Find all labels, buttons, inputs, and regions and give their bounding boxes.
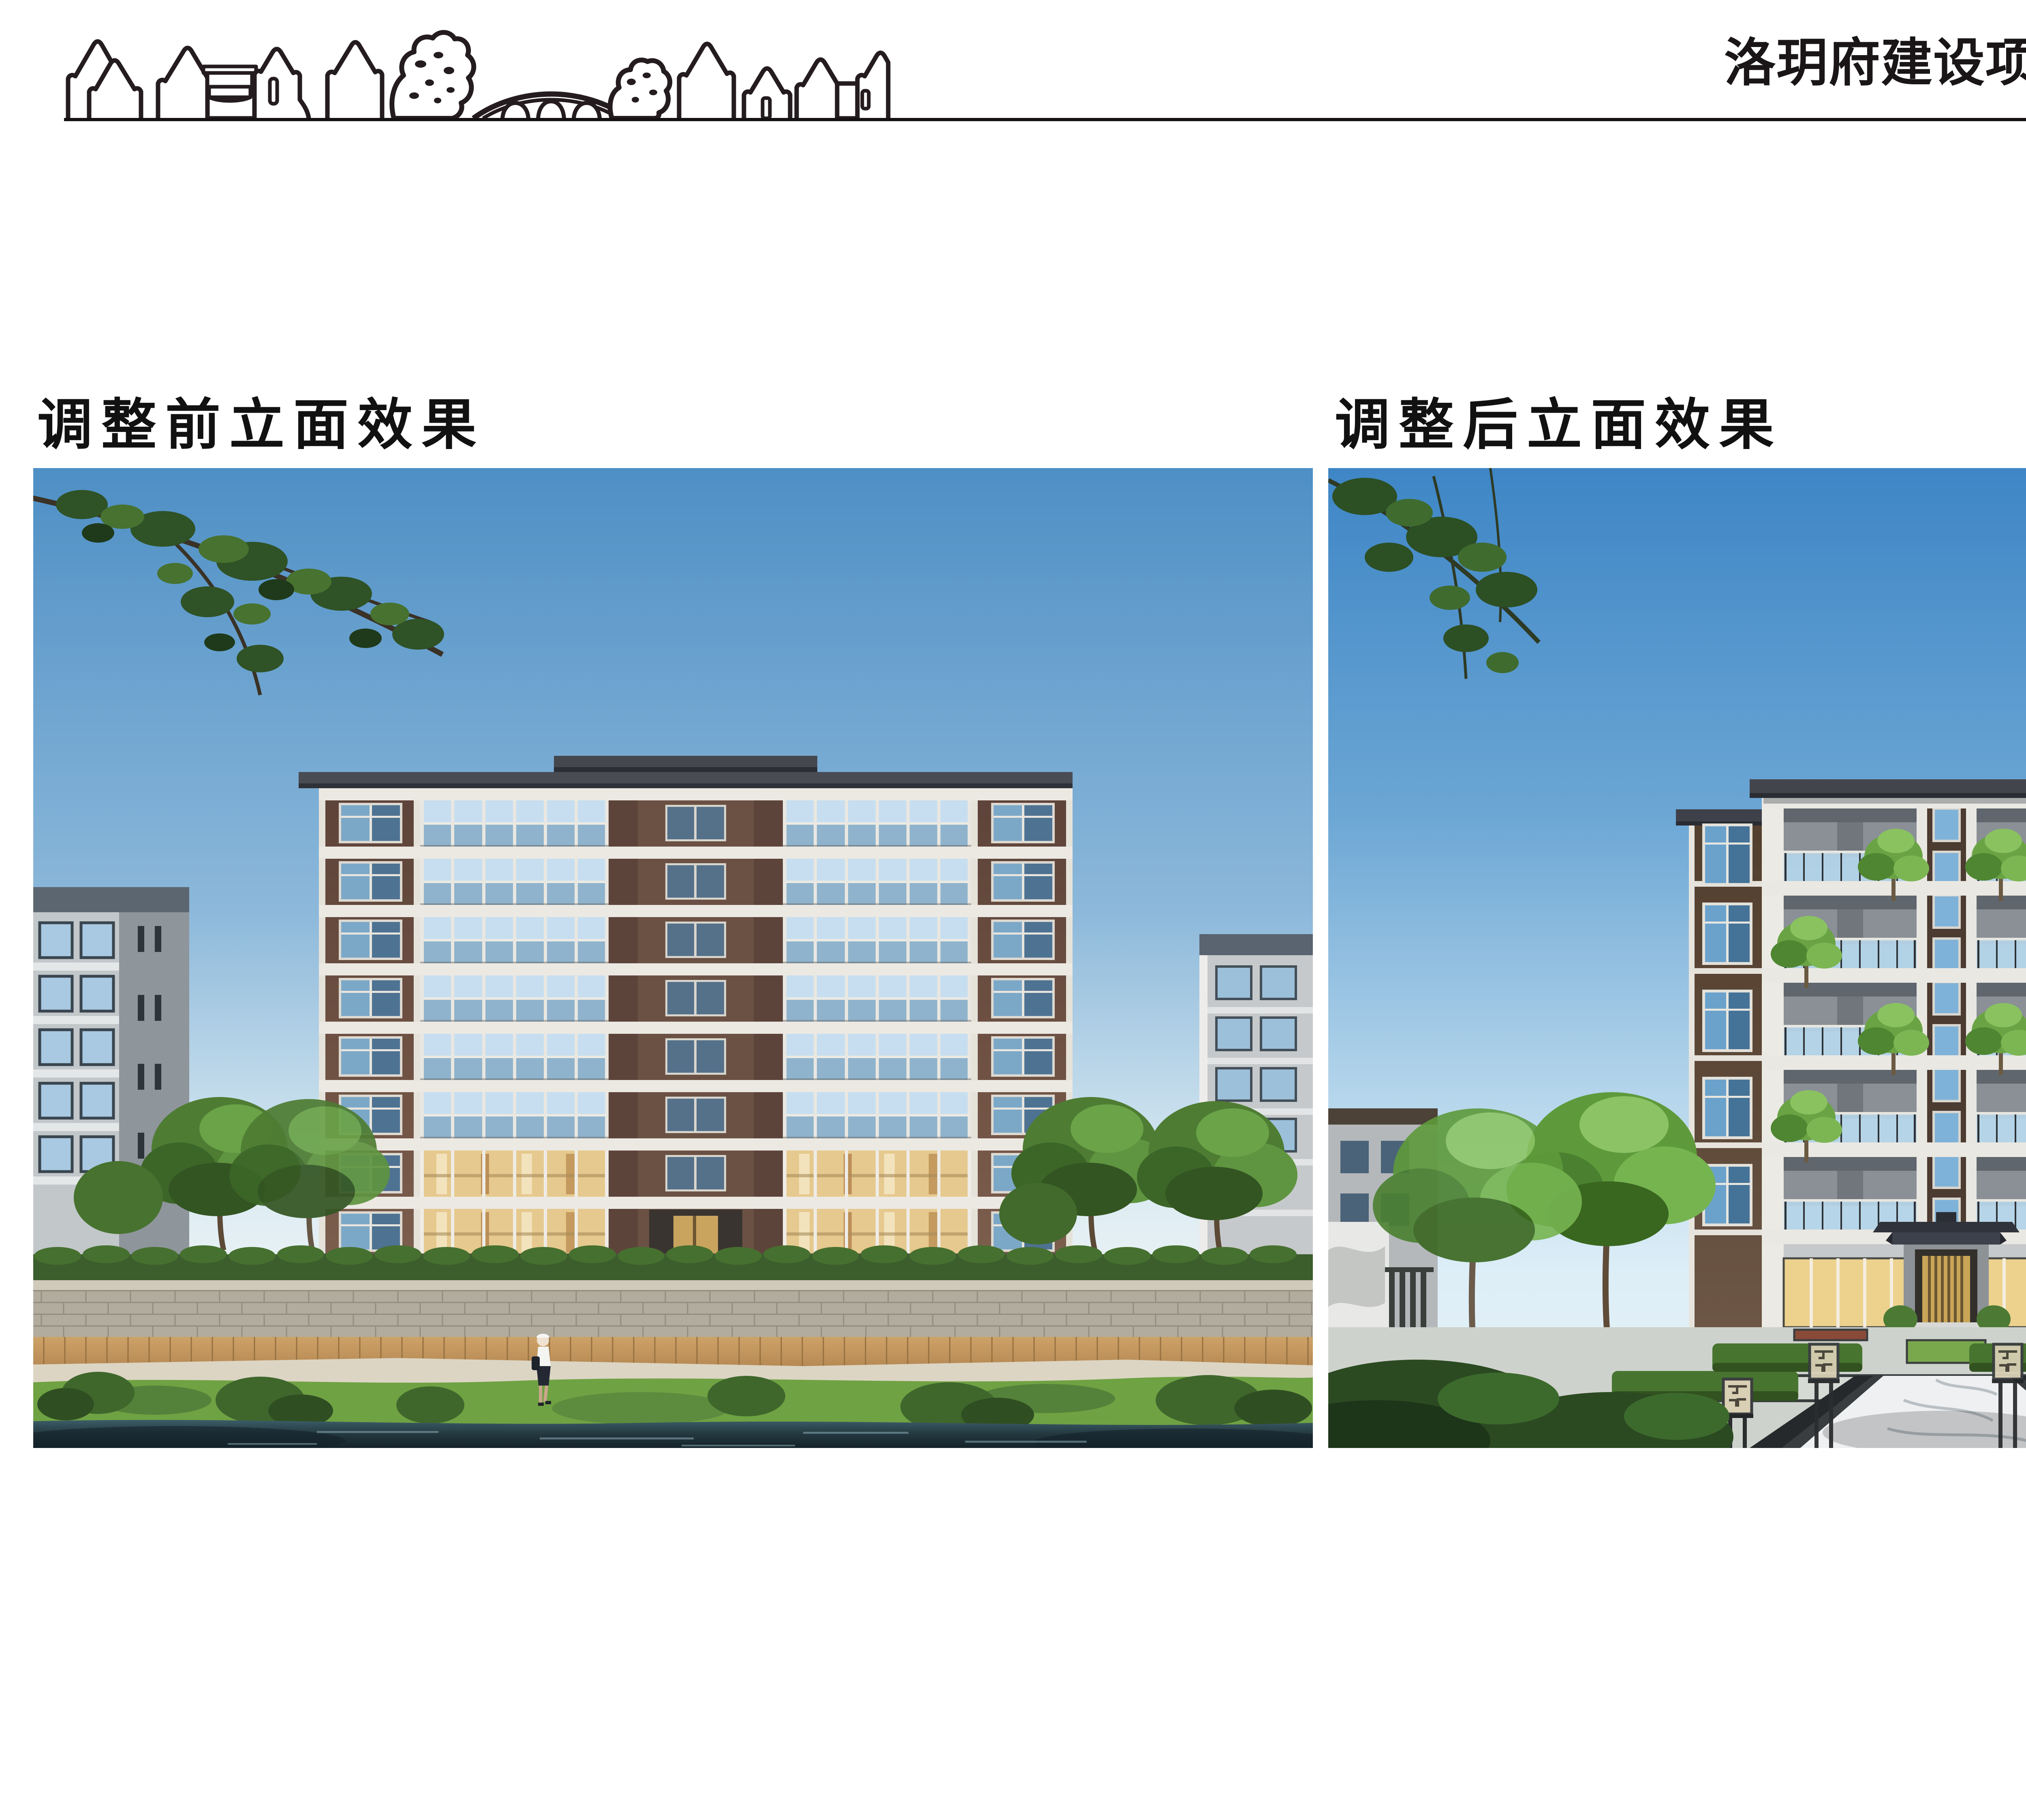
before-stone-wall [33, 1280, 1313, 1337]
before-main-building [299, 756, 1073, 1256]
before-section-label: 调整前立面效果 [37, 380, 485, 460]
after-main-building [1676, 779, 2026, 1333]
header-divider [64, 118, 2026, 121]
after-elevation-rendering [1328, 468, 2026, 1448]
after-courtyard-garden [1328, 1327, 2026, 1448]
before-elevation-rendering [33, 468, 1313, 1448]
after-section-label: 调整后立面效果 [1335, 380, 1783, 460]
design-adjustment-notice-page: 洛玥府建设项目方案设计调整公示 调整前立面效果 调整后立面效果 [0, 0, 2026, 1820]
village-skyline-logo-icon [65, 27, 891, 121]
page-title: 洛玥府建设项目方案设计调整公示 [1724, 35, 2026, 92]
